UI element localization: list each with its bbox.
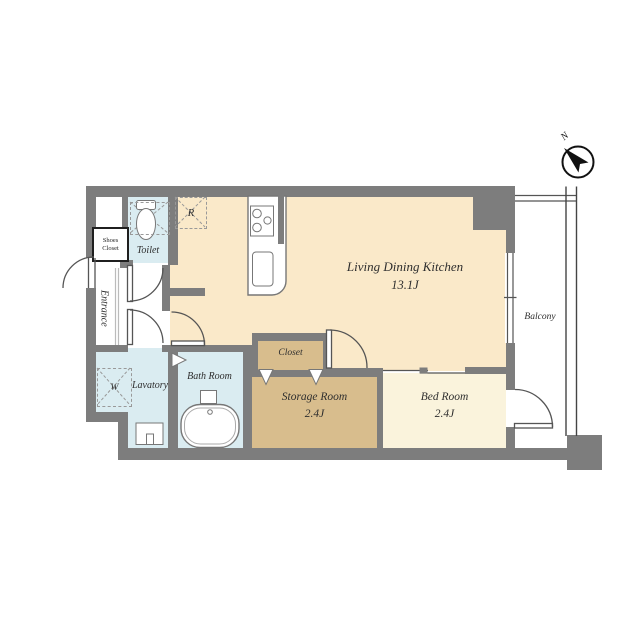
ldk-name: Living Dining Kitchen [320,258,490,276]
entrance-label: Entrance [96,276,112,340]
storage-door-panel [327,330,332,368]
ldk-door-arc [172,312,205,345]
ldk-door-panel [172,341,205,346]
storage-door-arc [330,330,367,368]
refrigerator-box: R [175,197,207,229]
entrance-door-jambs [89,258,96,288]
toilet-door-arc [130,268,163,301]
wall-kitchen-stub [278,192,284,244]
refrigerator-symbol: R [188,208,194,219]
toilet-door-panel [128,266,133,302]
storage-name: Storage Room [252,389,377,406]
balcony-top-edge [515,196,577,202]
lavatory-door-panel [128,310,133,345]
ldk-balcony-window [504,253,517,343]
ldk-area: 13.1J [320,276,490,294]
burner-icon [253,223,262,232]
entrance-door-arc [63,257,94,288]
balcony-label: Balcony [513,312,567,322]
hanger-mark-icon [309,370,323,385]
bedroom-name: Bed Room [383,389,506,406]
bath-door-icon [172,353,186,367]
kitchen-sink-icon [253,252,274,286]
bath-room-label: Bath Room [176,371,243,382]
closet-label: Closet [256,348,325,358]
toilet-cabinet-box [130,202,170,235]
bathtub-drain-icon [208,410,213,415]
bedroom-area: 2.4J [383,406,506,423]
partition-joint [420,368,428,374]
burner-icon [264,217,271,224]
entrance-step-lines [116,268,119,345]
ldk-label: Living Dining Kitchen 13.1J [320,258,490,294]
bedroom-balcony-door-arc [515,390,553,428]
lavatory-door-arc [130,310,163,343]
hanger-mark-icon [259,370,273,385]
lavatory-label: Lavatory [118,380,182,391]
bedroom-balcony-door-panel [515,424,553,429]
storage-label: Storage Room 2.4J [252,389,377,423]
storage-area: 2.4J [252,406,377,423]
floor-plan: Shoes Closet [0,0,640,640]
vanity-faucet-icon [147,434,154,445]
bath-counter-icon [201,391,217,404]
burner-icon [253,209,262,218]
toilet-label: Toilet [126,245,170,256]
balcony-railing [566,187,577,437]
bedroom-label: Bed Room 2.4J [383,389,506,423]
